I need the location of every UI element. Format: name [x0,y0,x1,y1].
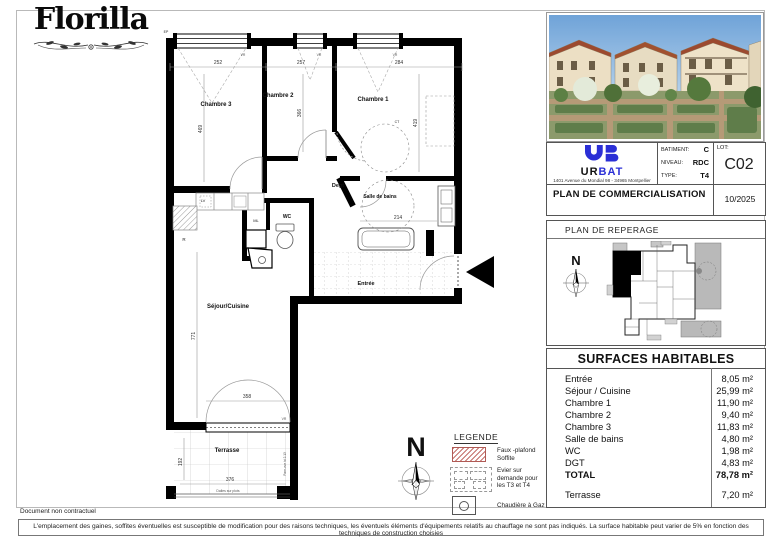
window-chambre3 [173,33,251,103]
label-vr-1: VR [241,53,246,57]
surface-row: Entrée8,05 m² [547,374,765,386]
dim-sdb-width: 214 [394,215,403,221]
dim-ch3-height: 469 [198,125,204,134]
dim-terrace-height: 192 [178,458,184,467]
reperage-title-row: PLAN DE REPERAGE [547,221,765,239]
lot-label: LOT: [717,145,729,151]
reperage-compass-icon [561,268,591,298]
entrance-arrow-icon [466,256,494,288]
legend-item-chaudiere: Chaudière à Gaz [497,502,557,510]
surfaces-table: Entrée8,05 m² Séjour / Cuisine25,99 m² C… [547,368,765,507]
dim-ch2-width: 257 [297,60,306,66]
surface-label: Entrée [565,374,592,384]
lot-value: C02 [713,156,765,174]
label-chambre3: Chambre 3 [200,102,232,108]
surface-value: 1,98 m² [721,446,753,456]
chambre1-wardrobe [426,96,454,146]
surface-label: Chambre 1 [565,398,611,408]
reperage-north: N [559,253,593,303]
chaudiere-swatch-icon [452,496,476,515]
disclaimer-bar: L'emplacement des gaines, soffites évent… [18,519,764,536]
urbat-wordmark: URBAT [547,167,657,177]
mini-locator-plan [595,241,723,341]
commercialisation-plan-page: Florilla [0,0,780,551]
terrace-deck [174,430,290,494]
surface-terrasse-row: Terrasse7,20 m² [547,490,765,502]
title-block: URBAT 1401 Avenue du Mondial 98 - 34965 … [546,142,766,216]
field-type: TYPE: T4 [657,169,713,182]
urbat-address: 1401 Avenue du Mondial 98 - 34965 Montpe… [547,178,657,183]
plan-title: PLAN DE COMMERCIALISATION [553,189,706,200]
urbat-logo-icon [582,145,622,162]
building-fields: BATIMENT: C NIVEAU: RDC TYPE: T4 [657,143,714,184]
surface-row: Séjour / Cuisine25,99 m² [547,386,765,398]
brand-name: Florilla [26,4,156,36]
dim-ch1-width: 284 [395,60,404,66]
urbat-wordmark-ur: UR [581,166,599,178]
label-vr-3: VR [393,53,398,57]
reperage-north-letter: N [559,253,593,268]
sdb-turning-circle [362,180,414,232]
brand-logo: Florilla [26,4,156,61]
faux-plafond-swatch-icon [452,447,486,462]
label-r: R [182,237,186,242]
label-vr-4: VR [282,417,287,421]
label-wc: WC [283,214,292,220]
legend: LEGENDE Faux -plafond Soffite Evier sur … [394,428,544,523]
label-chambre2: Chambre 2 [262,93,294,99]
entree-tile-floor [312,250,452,296]
legend-title: LEGENDE [454,432,498,444]
niveau-value: RDC [693,158,709,167]
vanity-icon [438,186,455,226]
kitchen-counter [196,193,264,210]
bathtub-icon [358,228,414,250]
field-niveau: NIVEAU: RDC [657,156,713,169]
legend-item-faux-plafond: Faux -plafond Soffite [497,447,545,462]
surface-label: Chambre 2 [565,410,611,420]
type-value: T4 [700,171,709,180]
surface-row: Chambre 29,40 m² [547,410,765,422]
total-label: TOTAL [565,470,595,480]
title-block-row2: PLAN DE COMMERCIALISATION 10/2025 [547,184,765,215]
surface-value: 11,90 m² [717,398,753,408]
dim-door-width: 358 [243,394,252,400]
dim-sejour-height: 771 [191,332,197,341]
surface-total-row: TOTAL78,78 m² [547,470,765,482]
evier-swatch-icon [450,467,492,492]
document-note: Document non contractuel [20,508,96,515]
total-value: 78,78 m² [716,470,753,480]
surface-label: Chambre 3 [565,422,611,432]
surface-row: Salle de bains4,80 m² [547,434,765,446]
label-terrasse: Terrasse [215,448,240,454]
label-vr-2: VR [317,53,322,57]
residence-photo [546,12,764,142]
surfaces-title: SURFACES HABITABLES [578,352,735,366]
plan-date: 10/2025 [714,194,766,204]
label-sdb: Salle de bains [363,194,397,200]
surfaces-box: SURFACES HABITABLES Entrée8,05 m² Séjour… [546,348,766,508]
surface-value: 4,80 m² [721,434,753,444]
window-chambre2 [293,33,327,80]
dim-terrace-width: 376 [226,477,235,483]
lot-cell: LOT: C02 [713,143,765,184]
surface-value: 4,83 m² [721,458,753,468]
terrace-side-note: Pare-vue ht 2.13 [283,452,287,476]
terrasse-value: 7,20 m² [721,490,753,500]
surface-label: DGT [565,458,585,468]
urbat-wordmark-bat: BAT [599,166,624,178]
label-entree: Entrée [357,281,374,287]
label-ep: EP [164,30,169,34]
surface-label: Salle de bains [565,434,623,444]
batiment-value: C [704,145,709,154]
surface-value: 11,83 m² [717,422,753,432]
type-label: TYPE: [661,173,677,179]
niveau-label: NIVEAU: [661,160,683,166]
surface-label: WC [565,446,581,456]
label-degt: Degt [332,183,344,189]
urbat-logo-cell: URBAT 1401 Avenue du Mondial 98 - 34965 … [547,143,658,184]
terrace-note: Dalles sur plots [216,489,239,493]
reperage-box: PLAN DE REPERAGE N [546,220,766,346]
batiment-label: BATIMENT: [661,147,689,153]
reperage-title: PLAN DE REPERAGE [565,225,659,235]
chambre1-turning-circle [361,124,409,172]
label-chambre1: Chambre 1 [357,97,389,103]
chambre1-door-leaf [336,132,354,158]
toilet-icon [276,224,294,249]
residence-photo-image [549,15,761,139]
surface-row: Chambre 311,83 m² [547,422,765,434]
surface-row: Chambre 111,90 m² [547,398,765,410]
dim-ch1-height: 419 [413,119,419,128]
label-lv: LV [201,198,206,203]
disclaimer-text: L'emplacement des gaines, soffites évent… [19,523,763,537]
brand-flourish-icon [30,36,152,56]
surface-value: 9,40 m² [721,410,753,420]
label-ml: ML [253,218,259,223]
legend-item-evier: Evier sur demande pour les T3 et T4 [497,467,545,490]
label-ct: CT [395,120,401,124]
boiler-icon [248,248,272,268]
surface-label: Séjour / Cuisine [565,386,631,396]
surface-row: WC1,98 m² [547,446,765,458]
surface-value: 8,05 m² [721,374,753,384]
surface-row: DGT4,83 m² [547,458,765,470]
terrasse-label: Terrasse [565,490,601,500]
surface-value: 25,99 m² [716,386,753,396]
fridge-area [173,206,197,230]
date-cell: 10/2025 [713,184,766,215]
title-block-row1: URBAT 1401 Avenue du Mondial 98 - 34965 … [547,143,765,185]
dim-ch2-height: 366 [297,109,303,118]
surfaces-title-row: SURFACES HABITABLES [547,349,765,369]
dim-ch3-width: 252 [214,60,223,66]
label-sejour: Séjour/Cuisine [207,304,250,310]
french-door [206,380,290,432]
field-batiment: BATIMENT: C [657,143,713,156]
washing-machine-icon [246,230,266,248]
